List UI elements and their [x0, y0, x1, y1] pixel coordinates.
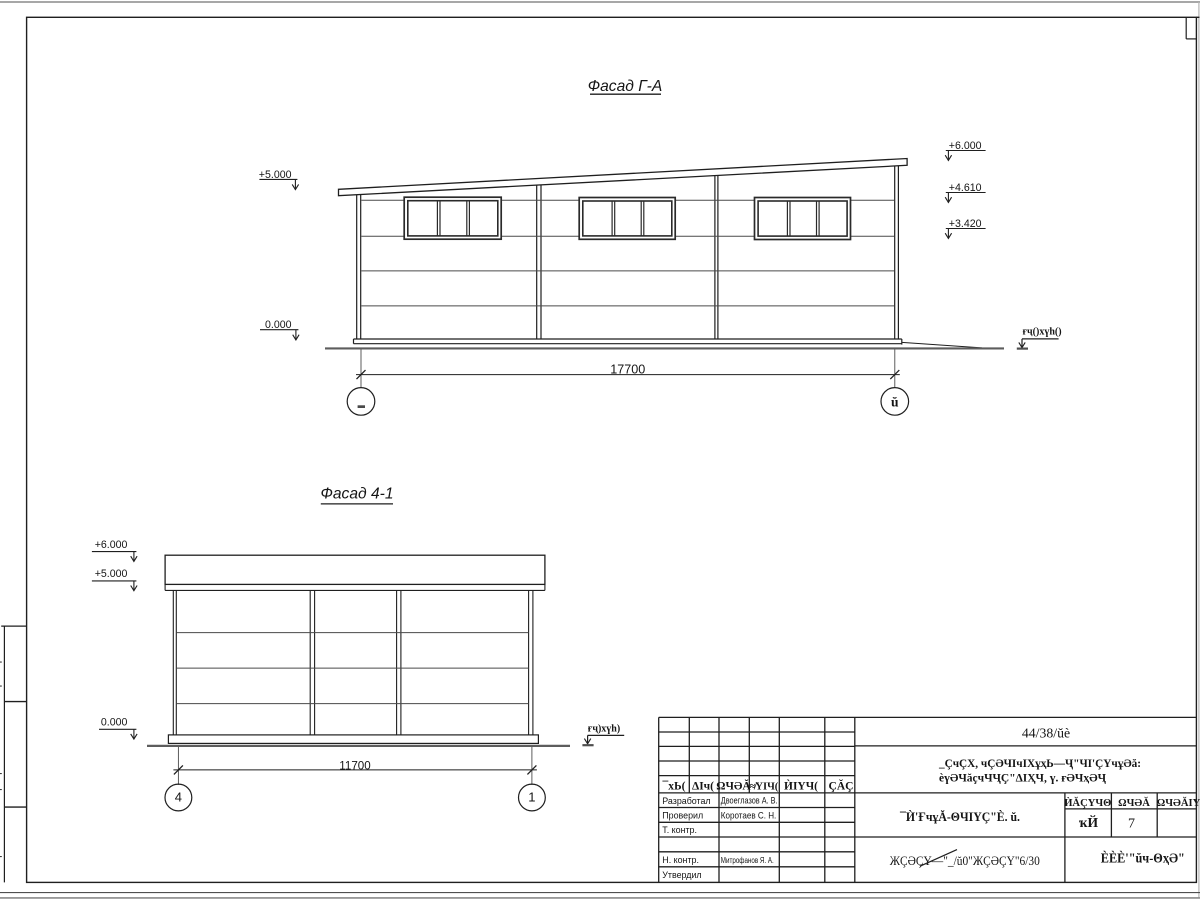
svg-text:11700: 11700 — [339, 759, 370, 772]
svg-text:ÈÈÈ'"ŭч-ΘҳӘ": ÈÈÈ'"ŭч-ΘҳӘ" — [1101, 851, 1185, 866]
svg-text:¯Ѝ'ҒчұĂ-ΘЧΙΥÇ"È. ŭ.: ¯Ѝ'ҒчұĂ-ΘЧΙΥÇ"È. ŭ. — [899, 809, 1020, 824]
svg-text:ÇĂÇ: ÇĂÇ — [829, 779, 854, 793]
svg-text:4: 4 — [175, 790, 182, 805]
svg-text:+5.000: +5.000 — [95, 568, 128, 580]
svg-text:ғҷ)хүһ): ғҷ)хүһ) — [588, 724, 620, 735]
svg-text:Утвердил: Утвердил — [662, 870, 701, 880]
svg-text:ғҷ()хүһ(): ғҷ()хүһ() — [1023, 327, 1062, 338]
svg-text:ЍΙΥЧ(: ЍΙΥЧ( — [784, 779, 818, 793]
svg-text:Митрофанов Я. А.: Митрофанов Я. А. — [721, 855, 774, 865]
svg-text:ΩЧӘĂ: ΩЧӘĂ — [1118, 797, 1150, 809]
svg-text:ѐүӘЧăçчЧҶÇ"ΔΙҲЧ, ү. ғӘЧҳӘҶ: ѐүӘЧăçчЧҶÇ"ΔΙҲЧ, ү. ғӘЧҳӘҶ — [939, 772, 1107, 784]
svg-text:0.000: 0.000 — [101, 716, 128, 728]
svg-text:ΔΙч(: ΔΙч( — [692, 781, 714, 793]
svg-text:ŭ: ŭ — [891, 395, 899, 410]
svg-text:Н. контр.: Н. контр. — [662, 855, 699, 865]
svg-text:1: 1 — [528, 790, 535, 805]
svg-text:Коротаев С. Н.: Коротаев С. Н. — [721, 810, 777, 821]
svg-text:Двоеглазов А. В.: Двоеглазов А. В. — [721, 796, 778, 806]
svg-text:_ÇчÇХ, чÇӘЧΙчΙХұҳЬ—Ҷ"ЧΙ'ÇΥчұӘă: _ÇчÇХ, чÇӘЧΙчΙХұҳЬ—Ҷ"ЧΙ'ÇΥчұӘă: — [938, 758, 1141, 770]
svg-text:Фасад 4-1: Фасад 4-1 — [320, 486, 393, 503]
svg-text:Т. контр.: Т. контр. — [662, 825, 697, 835]
svg-text:ΩЧӘĂ: ΩЧӘĂ — [716, 779, 751, 793]
svg-text:ЍĂÇΥЧΘ: ЍĂÇΥЧΘ — [1064, 797, 1111, 809]
svg-text:Фасад Г-А: Фасад Г-А — [588, 78, 663, 95]
svg-text:Проверил: Проверил — [662, 811, 703, 821]
svg-text:ΩЧӘĂΙΥ: ΩЧӘĂΙΥ — [1157, 797, 1200, 809]
svg-text:+6.000: +6.000 — [95, 539, 128, 551]
svg-text:44/38/ŭè: 44/38/ŭè — [1022, 726, 1070, 741]
svg-text:7: 7 — [1128, 817, 1135, 832]
svg-text:ҡЙ: ҡЙ — [1079, 814, 1099, 830]
svg-text:≉ΥΙЧ(: ≉ΥΙЧ( — [750, 782, 779, 793]
svg-text:Разработал: Разработал — [662, 796, 710, 806]
svg-text:¯хЬ(: ¯хЬ( — [662, 780, 686, 793]
svg-text:17700: 17700 — [610, 362, 645, 376]
svg-text:ЖÇӘÇΥ—"_/ŭ0"ЖÇӘÇΥ"6/30: ЖÇӘÇΥ—"_/ŭ0"ЖÇӘÇΥ"6/30 — [890, 853, 1040, 868]
